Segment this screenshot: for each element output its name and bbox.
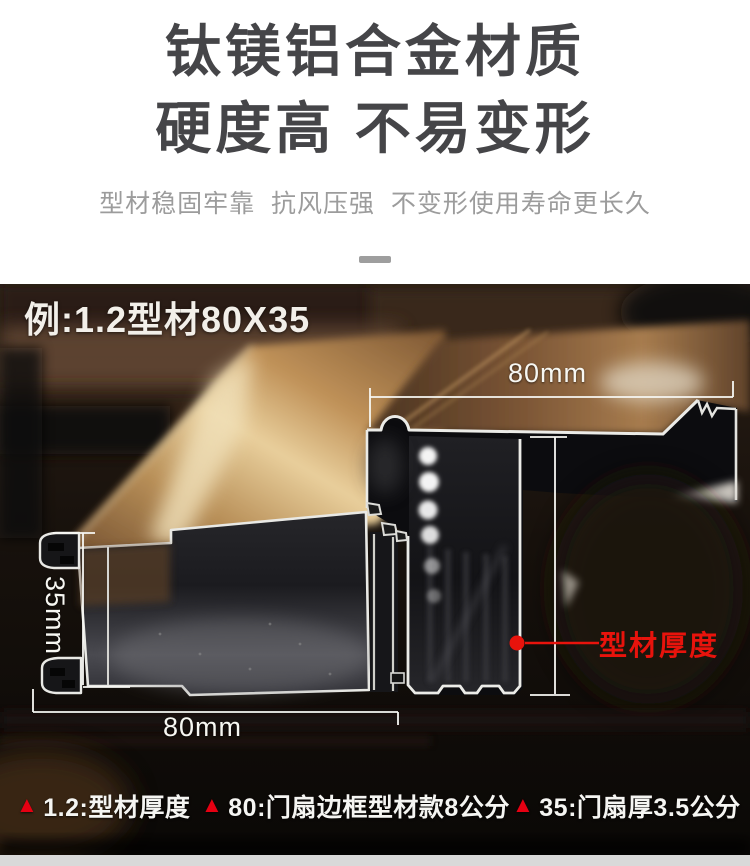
main-title-line2: 硬度高 不易变形 [0,99,750,159]
main-title-line1: 钛镁铝合金材质 [0,0,750,82]
caption-thickness: ▲ 1.2:型材厚度 [16,788,190,824]
profile-thickness-label: 型材厚度 [599,624,719,664]
caption-door-thickness: ▲ 35:门扇厚3.5公分 [512,788,741,824]
product-detail-page: 钛镁铝合金材质 硬度高 不易变形 型材稳固牢靠 抗风压强 不变形使用寿命更长久 [0,0,750,866]
dimension-bottom-width-label: 80mm [163,712,242,743]
caption-frame-width: ▲ 80:门扇边框型材款8公分 [201,788,510,824]
thickness-pointer-dot [510,636,525,651]
caption-door-thickness-text: 35:门扇厚3.5公分 [539,788,740,824]
annotated-photo-section: 例:1.2型材80X35 80mm 35mm 80mm 型材厚度 ▲ 1.2:型… [0,284,750,855]
triangle-icon: ▲ [201,792,223,818]
triangle-icon: ▲ [512,792,534,818]
footer-strip [0,855,750,866]
caption-frame-width-text: 80:门扇边框型材款8公分 [228,788,510,824]
example-spec-label: 例:1.2型材80X35 [24,291,310,343]
caption-thickness-text: 1.2:型材厚度 [43,788,190,824]
header-section: 钛镁铝合金材质 硬度高 不易变形 型材稳固牢靠 抗风压强 不变形使用寿命更长久 [0,0,750,284]
subtitle-text: 型材稳固牢靠 抗风压强 不变形使用寿命更长久 [0,190,750,218]
profile-photo-illustration [0,284,750,855]
divider-dash [359,256,391,263]
triangle-icon: ▲ [16,792,38,818]
dimension-top-width-label: 80mm [508,358,587,389]
dimension-left-height-label: 35mm [39,576,70,655]
